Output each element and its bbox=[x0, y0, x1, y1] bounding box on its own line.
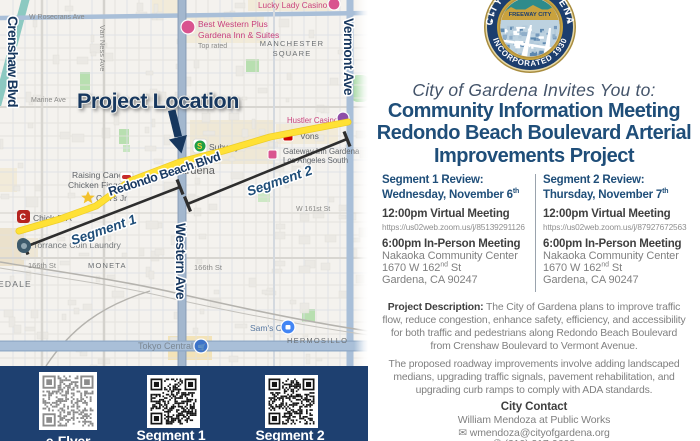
svg-text:W Rosecrans Ave: W Rosecrans Ave bbox=[29, 14, 85, 21]
svg-text:Van Ness Ave: Van Ness Ave bbox=[98, 25, 107, 71]
svg-text:MONETA: MONETA bbox=[88, 261, 127, 270]
svg-text:Gardena Inn & Suites: Gardena Inn & Suites bbox=[198, 30, 279, 40]
svg-text:★: ★ bbox=[491, 11, 496, 17]
svg-text:★: ★ bbox=[489, 19, 494, 25]
svg-text:Crenshaw Blvd: Crenshaw Blvd bbox=[5, 16, 21, 107]
svg-text:Marine Ave: Marine Ave bbox=[31, 97, 66, 104]
svg-text:166th St: 166th St bbox=[28, 261, 57, 270]
svg-text:166th St: 166th St bbox=[194, 263, 223, 272]
svg-text:Tokyo Central: Tokyo Central bbox=[138, 341, 193, 351]
svg-text:Top rated: Top rated bbox=[198, 43, 227, 50]
svg-text:Project Location: Project Location bbox=[77, 89, 239, 113]
svg-text:MANCHESTER: MANCHESTER bbox=[260, 39, 325, 48]
svg-text:Western Ave: Western Ave bbox=[173, 223, 188, 300]
svg-text:W 161st St: W 161st St bbox=[296, 206, 330, 213]
svg-text:HERMOSILLO: HERMOSILLO bbox=[287, 336, 348, 345]
svg-text:SQUARE: SQUARE bbox=[273, 49, 312, 58]
svg-text:S: S bbox=[197, 142, 203, 151]
svg-text:EDALE: EDALE bbox=[0, 279, 32, 289]
svg-text:★: ★ bbox=[564, 11, 569, 17]
svg-text:Vermont Ave: Vermont Ave bbox=[341, 18, 356, 96]
svg-text:🛒: 🛒 bbox=[198, 343, 207, 352]
svg-text:C: C bbox=[20, 212, 27, 222]
svg-text:Lucky Lady Casino: Lucky Lady Casino bbox=[258, 1, 328, 10]
svg-text:FREEWAY CITY: FREEWAY CITY bbox=[509, 12, 552, 18]
svg-text:Best Western Plus: Best Western Plus bbox=[198, 19, 268, 29]
svg-text:★: ★ bbox=[566, 19, 571, 25]
